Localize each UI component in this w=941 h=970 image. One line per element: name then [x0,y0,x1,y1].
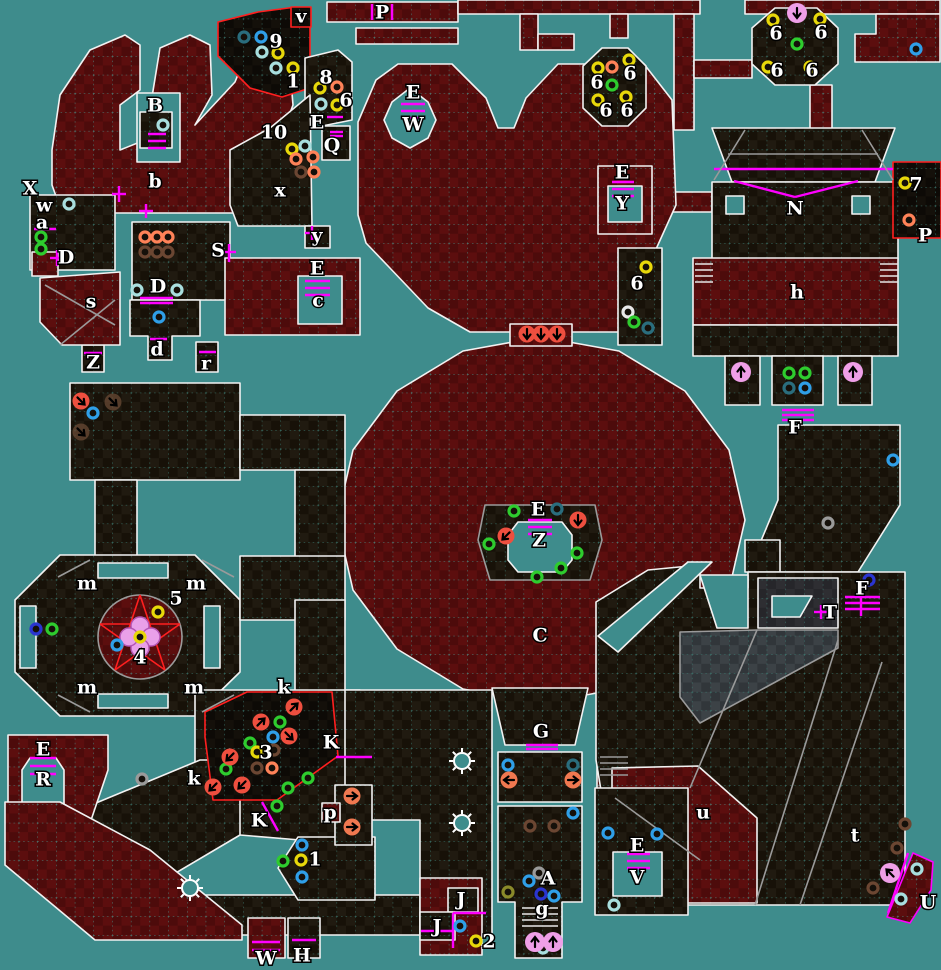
map-sector [204,606,220,668]
map-marker-6: 6 [339,90,352,112]
item-brown-ring [525,821,535,831]
map-sector [356,28,458,44]
map-marker-6: 6 [769,23,782,45]
doom-automap[interactable]: v91PBb86EQ10xyXwaEW66666666EY7PNhSDDsdZr… [0,0,941,970]
map-sector [674,14,694,130]
item-orange-ring [904,215,914,225]
item-cyan-ring [64,199,74,209]
map-sector [295,470,345,560]
map-marker-b: b [148,171,161,193]
map-sector [772,356,823,405]
map-marker-1: 1 [286,71,299,93]
map-sector [745,540,780,572]
item-cyan-ring [896,894,906,904]
map-marker-6: 6 [599,100,612,122]
map-marker-6: 6 [623,63,636,85]
map-marker-P: P [375,2,389,24]
item-cyan-ring [609,900,619,910]
map-sector [40,272,120,345]
map-marker-J: J [431,916,442,938]
map-sector [810,85,832,130]
level-map-canvas: v91PBb86EQ10xyXwaEW66666666EY7PNhSDDsdZr… [0,0,941,970]
item-blue-ring [297,872,307,882]
monster-icon [570,512,587,529]
map-marker-E: E [36,739,50,761]
map-sector [726,196,744,214]
map-marker-9: 9 [269,31,282,53]
map-marker-4: 4 [133,647,146,669]
map-marker-y: y [310,225,323,247]
map-marker-s: s [86,291,97,313]
map-marker-6: 6 [590,72,603,94]
item-blue-ring [603,828,613,838]
item-blue-ring [297,840,307,850]
map-marker-h: h [790,282,804,304]
item-tealdark-ring [568,760,578,770]
map-marker-k: k [277,677,291,699]
map-marker-6: 6 [620,100,633,122]
map-marker-m: m [77,677,97,699]
item-green-ring [303,773,313,783]
item-green-ring [556,563,566,573]
map-marker-d: d [150,339,163,361]
item-orange-ring [140,232,150,242]
monster-icon [731,362,751,382]
map-sector [98,694,168,708]
item-blue-ring [888,455,898,465]
map-marker-1: 1 [308,849,321,871]
item-blue-ring [800,383,810,393]
map-marker-6: 6 [814,22,827,44]
item-cyan-ring [300,141,310,151]
item-green-ring [36,244,46,254]
item-green-ring [221,764,231,774]
item-green-ring [792,39,802,49]
item-olive-ring [503,887,513,897]
item-blue-ring [256,32,266,42]
map-marker-D: D [150,276,166,298]
item-brown-ring [152,247,162,257]
item-orange-ring [152,232,162,242]
monster-icon [501,772,518,789]
item-cyan-ring [912,864,922,874]
item-green-ring [278,856,288,866]
map-marker-B: B [147,95,163,117]
map-sector [712,128,895,182]
item-green-ring [629,317,639,327]
item-tealdark-ring [784,383,794,393]
item-orange-ring [291,154,301,164]
map-sector [20,606,36,668]
map-marker-K: K [251,810,269,832]
item-brown-ring [140,247,150,257]
item-green-ring [572,548,582,558]
item-blue-ring [524,876,534,886]
item-blue-ring [911,44,921,54]
map-marker-5: 5 [169,588,182,610]
item-yellow-ring [135,632,145,642]
item-orange-ring [308,152,318,162]
map-marker-u: u [696,802,710,824]
map-marker-m: m [186,573,206,595]
map-marker-6: 6 [770,60,783,82]
map-marker-U: U [920,892,937,914]
item-blue-ring [568,808,578,818]
map-marker-Z: Z [86,352,100,374]
map-sector [694,60,752,78]
map-marker-k: k [187,768,201,790]
item-green-ring [532,572,542,582]
map-marker-N: N [786,198,803,220]
lamp-icon [449,810,475,836]
map-marker-t: t [851,825,860,847]
item-brown-ring [296,167,306,177]
item-orange-ring [607,62,617,72]
item-yellow-ring [471,936,481,946]
item-tealdark-ring [552,504,562,514]
item-grey-ring [137,774,147,784]
map-marker-E: E [310,112,324,134]
item-cyan-ring [271,63,281,73]
monster-icon [843,362,863,382]
map-marker-F: F [788,417,802,439]
map-sector [70,383,240,480]
monster-icon [543,932,563,952]
map-marker-r: r [201,353,212,375]
map-marker-10: 10 [261,122,287,144]
item-brown-ring [892,843,902,853]
item-blue-ring [503,760,513,770]
item-yellow-ring [296,855,306,865]
map-sector [693,325,898,356]
item-blue-ring [88,408,98,418]
map-sector [520,14,538,50]
map-marker-K: K [323,732,341,754]
map-sector [278,837,375,900]
map-marker-T: T [823,602,837,624]
item-green-ring [509,506,519,516]
map-sector [32,252,58,276]
item-green-ring [607,80,617,90]
item-green-ring [800,368,810,378]
item-tealdark-ring [239,32,249,42]
map-marker-S: S [211,240,225,262]
item-green-ring [784,368,794,378]
monster-icon [344,819,361,836]
item-cyan-ring [158,120,168,130]
map-marker-7: 7 [909,174,922,196]
map-sector [852,196,870,214]
map-marker-A: A [540,868,556,890]
map-marker-c: c [312,290,324,312]
item-orange-ring [267,763,277,773]
map-marker-g: g [535,898,548,920]
map-marker-D: D [58,247,74,269]
map-marker-J: J [455,889,466,911]
lamp-icon [177,875,203,901]
map-marker-m: m [77,573,97,595]
map-marker-m: m [184,677,204,699]
map-marker-x: x [274,180,286,202]
map-sector [618,248,662,345]
map-sector [240,415,345,470]
item-green-ring [484,539,494,549]
map-marker-E: E [615,162,629,184]
item-brown-ring [549,821,559,831]
map-marker-8: 8 [319,67,332,89]
map-marker-Z: Z [532,530,546,552]
map-sector [458,0,700,14]
monster-icon [787,3,807,23]
item-white-ring [623,307,633,317]
map-marker-6: 6 [630,273,643,295]
item-brown-ring [252,763,262,773]
map-marker-p: p [323,802,336,824]
map-marker-6: 6 [805,60,818,82]
item-brown-ring [868,883,878,893]
monster-icon [549,326,566,343]
map-marker-3: 3 [259,742,272,764]
item-blue-ring [549,891,559,901]
monster-icon [525,932,545,952]
item-green-ring [275,717,285,727]
map-marker-F: F [855,578,869,600]
map-marker-G: G [533,721,549,743]
monster-icon [533,326,550,343]
map-marker-a: a [36,212,48,234]
map-marker-v: v [294,6,307,28]
map-marker-E: E [630,835,644,857]
item-green-ring [272,801,282,811]
map-marker-E: E [531,499,545,521]
item-orange-ring [309,167,319,177]
map-marker-Y: Y [614,193,629,215]
monster-icon [344,788,361,805]
map-marker-W: W [254,948,277,970]
map-marker-E: E [310,258,324,280]
map-sector [98,563,168,578]
map-marker-E: E [406,82,420,104]
item-cyan-ring [257,47,267,57]
item-brown-ring [900,819,910,829]
item-green-ring [47,624,57,634]
item-grey-ring [823,518,833,528]
monster-icon [565,772,582,789]
map-marker-V: V [629,867,646,889]
item-green-ring [283,783,293,793]
item-blue-ring [154,312,164,322]
map-marker-2: 2 [482,931,495,953]
map-marker-R: R [35,769,51,791]
map-sector [295,600,345,695]
map-sector [610,14,628,38]
item-darkblue-ring [31,624,41,634]
item-brown-ring [163,247,173,257]
item-yellow-ring [641,262,651,272]
item-tealdark-ring [643,323,653,333]
map-marker-C: C [532,625,547,647]
item-cyan-ring [316,99,326,109]
item-blue-ring [112,640,122,650]
item-yellow-ring [153,607,163,617]
item-cyan-ring [172,285,182,295]
item-blue-ring [455,921,465,931]
item-blue-ring [652,829,662,839]
item-green-ring [36,232,46,242]
map-marker-H: H [293,945,311,967]
map-marker-Q: Q [324,135,341,157]
map-marker-P: P [918,225,932,247]
item-blue-ring [268,732,278,742]
item-cyan-ring [132,285,142,295]
map-sector [538,34,574,50]
map-marker-W: W [401,114,424,136]
lamp-icon [449,748,475,774]
item-orange-ring [163,232,173,242]
